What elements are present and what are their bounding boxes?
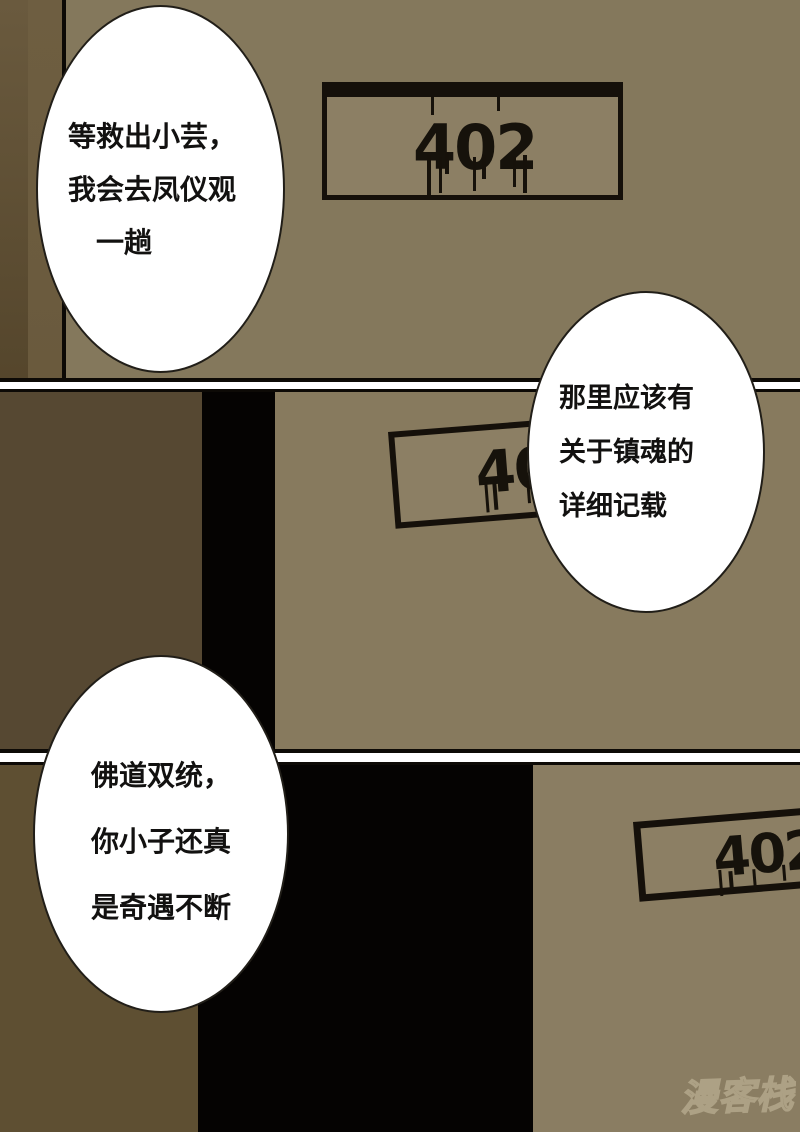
bubble-text-line: 详细记载 <box>559 479 763 533</box>
bubble-text-line: 你小子还真 <box>91 809 287 875</box>
paint-drip <box>513 157 516 187</box>
paint-drip <box>439 157 442 193</box>
paint-drip <box>445 152 449 174</box>
paint-drip <box>482 155 486 179</box>
speech-bubble-1: 等救出小芸， 我会去凤仪观 一趟 <box>36 5 285 373</box>
comic-page: 402 402 402 <box>0 0 800 1132</box>
speech-bubble-3: 佛道双统， 你小子还真 是奇遇不断 <box>33 655 289 1013</box>
bubble-text-line: 我会去凤仪观 <box>68 163 283 216</box>
bubble-text-line: 是奇遇不断 <box>91 875 287 941</box>
bubble-text-line: 那里应该有 <box>559 371 763 425</box>
bubble-text-line: 等救出小芸， <box>68 110 283 163</box>
door-edge-dark-strip <box>0 0 28 378</box>
bubble-text-line: 佛道双统， <box>91 743 287 809</box>
paint-drip <box>431 97 434 115</box>
paint-drip <box>473 157 476 191</box>
speech-bubble-2: 那里应该有 关于镇魂的 详细记载 <box>527 291 765 613</box>
bubble-text-line: 关于镇魂的 <box>559 425 763 479</box>
paint-drip <box>523 155 527 193</box>
mankezhan-watermark-logo: 漫客栈 <box>679 1064 795 1122</box>
bubble-text-line: 一趟 <box>68 216 283 269</box>
paint-drip <box>497 97 500 111</box>
door-sign-402-tilted: 402 <box>633 803 800 902</box>
paint-drip <box>427 155 431 195</box>
door-sign-402: 402 <box>322 82 623 200</box>
